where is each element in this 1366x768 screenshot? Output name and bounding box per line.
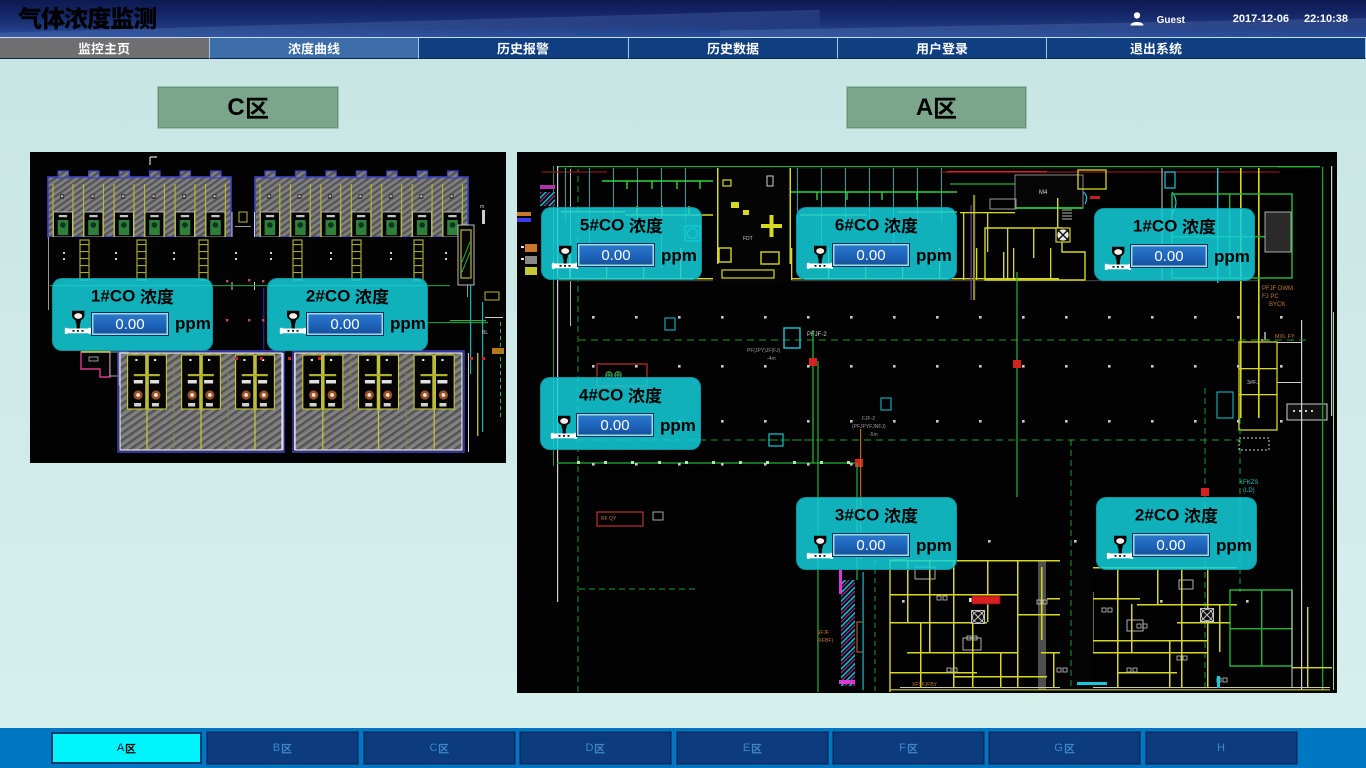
svg-text:PF(JPY)JF(FJ): PF(JPY)JF(FJ)	[747, 348, 781, 354]
svg-text:MXL FY: MXL FY	[1275, 334, 1295, 340]
svg-text:FJ PC: FJ PC	[1262, 294, 1279, 300]
svg-text:BYCK: BYCK	[1269, 302, 1285, 308]
svg-text:(LD): (LD)	[1243, 488, 1255, 494]
svg-text:-5m: -5m	[869, 432, 878, 438]
svg-text:XFSFJFBY: XFSFJFBY	[912, 682, 938, 688]
svg-text:BL: BL	[482, 330, 488, 336]
svg-text:PFJF-2: PFJF-2	[807, 332, 827, 338]
svg-text:FDT: FDT	[743, 236, 753, 242]
svg-text:3#FJ: 3#FJ	[1247, 380, 1259, 386]
svg-text:m: m	[480, 204, 484, 210]
svg-text:(PFJPYFJNFJ): (PFJPYFJNFJ)	[852, 424, 886, 430]
svg-text:M4: M4	[1039, 190, 1048, 196]
svg-text:RF QY: RF QY	[601, 516, 617, 522]
svg-text:SFJF: SFJF	[817, 630, 829, 636]
svg-text:PFJF DWM: PFJF DWM	[1262, 286, 1293, 292]
svg-text:(XFBF): (XFBF)	[817, 638, 833, 644]
svg-text:FJF-2: FJF-2	[862, 416, 875, 422]
svg-text:-4m: -4m	[767, 356, 776, 362]
svg-text:XFKZS: XFKZS	[1239, 480, 1258, 486]
